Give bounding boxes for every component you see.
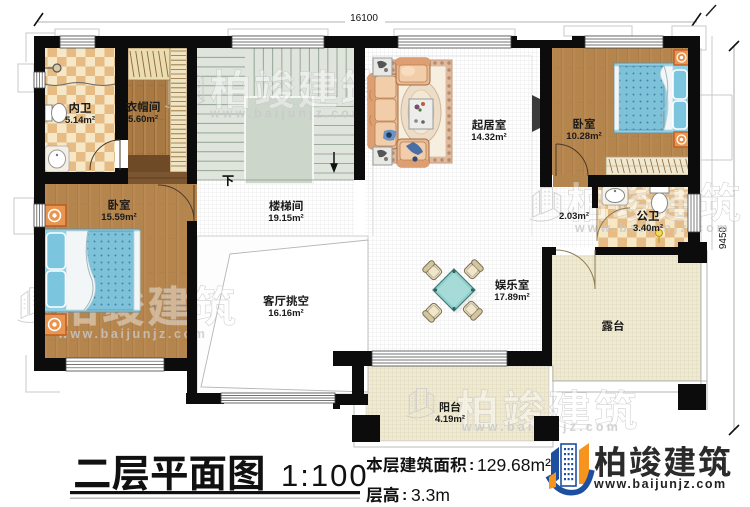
svg-text:129.68m²: 129.68m² — [477, 455, 551, 475]
svg-text:5.60m²: 5.60m² — [128, 114, 158, 125]
svg-text:10.28m²: 10.28m² — [566, 131, 601, 142]
svg-text::: : — [402, 487, 407, 504]
svg-text:15.59m²: 15.59m² — [101, 212, 136, 223]
svg-text:www.baijunjz.com: www.baijunjz.com — [209, 107, 366, 121]
svg-text:16.16m²: 16.16m² — [268, 308, 303, 319]
svg-text:www.baijunjz.com: www.baijunjz.com — [593, 477, 727, 491]
svg-text:16100: 16100 — [350, 13, 378, 24]
svg-text:2.03m²: 2.03m² — [559, 211, 589, 222]
svg-text:17.89m²: 17.89m² — [494, 292, 529, 303]
svg-text:www.baijunjz.com: www.baijunjz.com — [57, 327, 207, 341]
svg-text:5.14m²: 5.14m² — [65, 115, 95, 126]
svg-text:14.32m²: 14.32m² — [471, 132, 506, 143]
svg-text:1:100: 1:100 — [281, 458, 369, 493]
svg-text:3.40m²: 3.40m² — [633, 223, 663, 234]
svg-text::: : — [469, 457, 474, 474]
svg-text:3.3m: 3.3m — [411, 485, 450, 505]
svg-text:19.15m²: 19.15m² — [268, 213, 303, 224]
svg-text:4.19m²: 4.19m² — [435, 414, 465, 425]
